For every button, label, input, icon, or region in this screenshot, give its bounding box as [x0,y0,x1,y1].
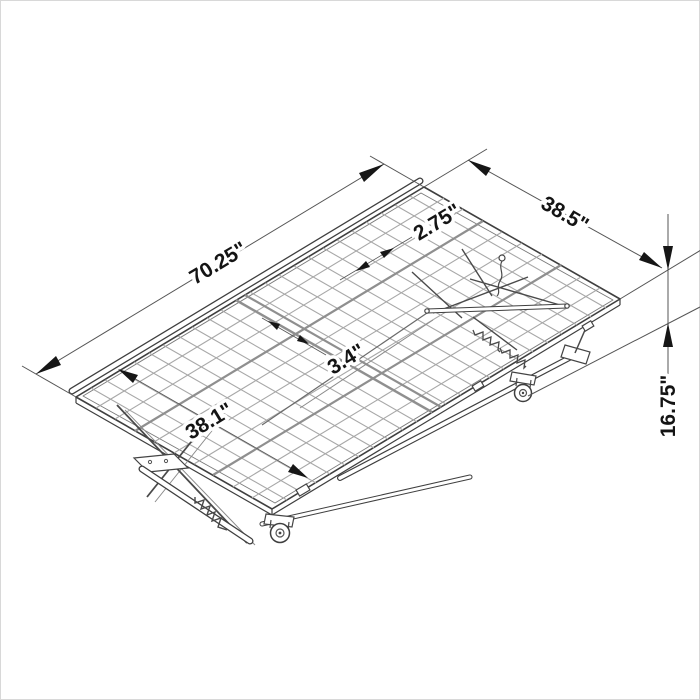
caster-axle [279,532,282,535]
dimension-drawing-canvas: 70.25" 38.5" 16.75" 2.75" 3.4" 38.1" [0,0,700,700]
trundle-frame-diagram: 70.25" 38.5" 16.75" 2.75" 3.4" 38.1" [0,0,700,700]
linkage-pivot [565,304,569,308]
caster-axle [522,392,524,394]
release-ring-icon [499,255,505,261]
dimension-label-height: 16.75" [657,375,680,438]
linkage-pivot [425,309,429,313]
